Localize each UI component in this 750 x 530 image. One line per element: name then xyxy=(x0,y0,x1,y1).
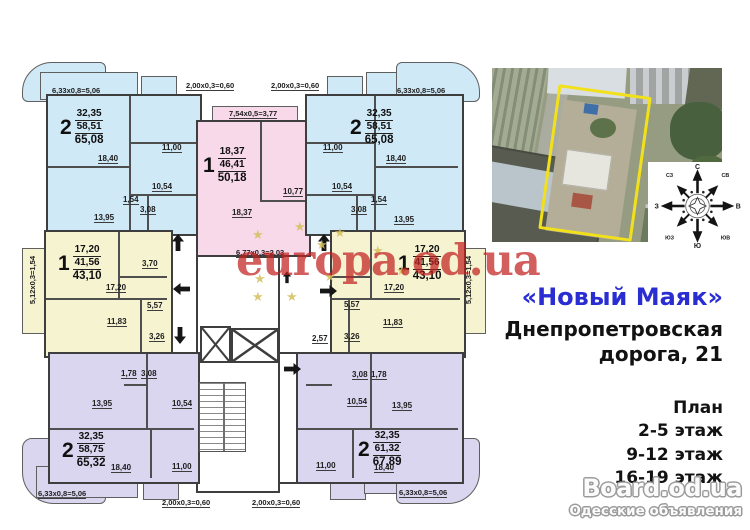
dimension-label: 6,33x0,8=5,06 xyxy=(399,488,447,498)
room-area-label: 13,95 xyxy=(92,400,112,409)
compass-icon: С Ю З В СЗ СВ ЮЗ ЮВ xyxy=(648,162,747,250)
apartment-stats-top-left: 2 32,3558,5165,08 xyxy=(60,108,103,148)
room-area-label: 13,95 xyxy=(392,402,412,411)
area-total: 43,10 xyxy=(73,270,102,284)
room-area-label: 5,57 xyxy=(147,302,163,311)
watermark-europa: europa.od.ua xyxy=(236,240,540,283)
room-area-label: 2,57 xyxy=(312,335,328,344)
room-area-label: 11,00 xyxy=(323,144,343,153)
wall xyxy=(48,166,129,168)
address-line-1: Днепропетровская xyxy=(470,317,723,342)
room-area-label: 11,00 xyxy=(162,144,182,153)
dimension-label: 7,54x0,5=3,77 xyxy=(229,109,277,119)
compass-northwest-label: СЗ xyxy=(666,173,674,179)
area-living: 18,37 xyxy=(218,146,247,159)
area-living: 32,35 xyxy=(75,108,104,121)
wall xyxy=(262,200,305,202)
room-area-label: 10,54 xyxy=(332,183,352,192)
arrow-left-icon xyxy=(173,283,195,295)
compass-southeast-label: ЮВ xyxy=(721,235,731,241)
room-area-label: 18,37 xyxy=(232,209,252,218)
room-area-label: 3,26 xyxy=(149,333,165,342)
board-tagline: Одесские объявления xyxy=(480,503,742,519)
room-area-label: 3,08 xyxy=(352,371,368,380)
compass-west-label: З xyxy=(655,204,660,211)
compass-southwest-label: ЮЗ xyxy=(665,235,675,241)
room-area-label: 13,95 xyxy=(394,216,414,225)
room-area-label: 17,20 xyxy=(106,284,126,293)
arrow-right-icon xyxy=(315,285,337,297)
elevator-shaft xyxy=(231,328,279,363)
room-area-label: 11,00 xyxy=(316,462,336,471)
project-title: «Новый Маяк» xyxy=(470,283,723,311)
compass-east-label: В xyxy=(736,204,741,211)
wall xyxy=(140,300,142,352)
plan-heading: План xyxy=(470,397,723,420)
wall xyxy=(124,384,148,386)
room-area-label: 11,83 xyxy=(383,319,403,328)
area-usable: 61,32 xyxy=(373,443,402,456)
arrow-right-icon xyxy=(279,363,301,375)
elevator-shaft xyxy=(200,326,231,363)
room-area-label: 1,54 xyxy=(123,196,139,205)
dimension-label: 6,33x0,8=5,06 xyxy=(52,86,100,96)
room-area-label: 3,70 xyxy=(142,260,158,269)
room-count: 1 xyxy=(58,253,70,274)
stair-rail xyxy=(223,383,225,451)
apartment-stats-top-middle: 1 18,3746,4150,18 xyxy=(203,146,246,186)
wall xyxy=(150,430,152,478)
wall xyxy=(260,122,262,202)
site-outline xyxy=(538,84,651,242)
dimension-label: 2,00x0,3=0,60 xyxy=(271,81,319,91)
dimension-label: 2,00x0,3=0,60 xyxy=(252,498,300,508)
floor-range-2: 9-12 этаж xyxy=(470,444,723,467)
room-area-label: 18,40 xyxy=(374,464,394,473)
room-area-label: 10,54 xyxy=(172,400,192,409)
room-area-label: 10,54 xyxy=(347,398,367,407)
room-area-label: 18,40 xyxy=(98,155,118,164)
area-usable: 58,75 xyxy=(77,444,106,457)
room-area-label: 11,00 xyxy=(172,463,192,472)
compass-northeast-label: СВ xyxy=(722,173,730,179)
wall xyxy=(131,194,196,196)
room-count: 2 xyxy=(358,439,370,460)
floor-plan: 2 32,3558,5165,08 1 18,3746,4150,18 2 32… xyxy=(0,0,490,530)
room-area-label: 18,40 xyxy=(111,464,131,473)
area-living: 32,35 xyxy=(77,431,106,444)
wall xyxy=(146,354,148,428)
apartment-stats-middle-left: 1 17,2041,5643,10 xyxy=(58,244,101,284)
wall xyxy=(50,428,194,430)
area-living: 32,35 xyxy=(373,430,402,443)
board-logo: Board.od.ua xyxy=(480,474,742,502)
dimension-label: 2,00x0,3=0,60 xyxy=(162,498,210,508)
wall xyxy=(46,298,167,300)
area-total: 65,08 xyxy=(75,134,104,148)
room-area-label: 10,77 xyxy=(283,188,303,197)
area-living: 32,35 xyxy=(365,108,394,121)
room-area-label: 3,08 xyxy=(141,370,157,379)
room-area-label: 1,54 xyxy=(371,196,387,205)
area-usable: 46,41 xyxy=(218,159,247,172)
room-count: 1 xyxy=(203,155,215,176)
compass-rose: С Ю З В СЗ СВ ЮЗ ЮВ xyxy=(648,162,747,250)
wall xyxy=(306,384,332,386)
staircase xyxy=(199,382,246,452)
star-icon: ★ xyxy=(252,290,264,303)
compass-north-label: С xyxy=(695,164,700,171)
room-count: 2 xyxy=(60,117,72,138)
dimension-label-vertical: 5,12x0,3=1,54 xyxy=(28,256,37,304)
area-usable: 41,56 xyxy=(73,257,102,270)
area-total: 65,32 xyxy=(77,457,106,471)
wall xyxy=(307,194,374,196)
room-area-label: 10,54 xyxy=(152,183,172,192)
dimension-label: 6,33x0,8=5,06 xyxy=(38,489,86,499)
compass-south-label: Ю xyxy=(694,243,701,250)
area-total: 50,18 xyxy=(218,172,247,186)
area-total: 65,08 xyxy=(365,134,394,148)
area-usable: 58,51 xyxy=(365,121,394,134)
listing-image: 2 32,3558,5165,08 1 18,3746,4150,18 2 32… xyxy=(0,0,750,530)
room-area-label: 13,95 xyxy=(94,214,114,223)
apartment-stats-bottom-left: 2 32,3558,7565,32 xyxy=(62,431,105,471)
area-living: 17,20 xyxy=(73,244,102,257)
stair-elevator-core xyxy=(196,251,280,493)
room-area-label: 11,83 xyxy=(107,318,127,327)
room-count: 2 xyxy=(350,117,362,138)
apartment-stats-top-right: 2 32,3558,5165,08 xyxy=(350,108,393,148)
dimension-label: 2,00x0,3=0,60 xyxy=(186,81,234,91)
wall xyxy=(352,430,354,478)
arrow-up-icon xyxy=(172,234,184,256)
room-area-label: 3,26 xyxy=(344,333,360,342)
wall xyxy=(376,166,458,168)
wall xyxy=(370,354,372,428)
board-watermark: Board.od.ua Одесские объявления xyxy=(480,474,742,519)
info-panel: «Новый Маяк» Днепропетровская дорога, 21… xyxy=(470,283,723,491)
floor-range-1: 2-5 этаж xyxy=(470,420,723,443)
room-area-label: 1,78 xyxy=(371,371,387,380)
wall xyxy=(118,276,167,278)
tree-cluster xyxy=(670,102,722,160)
arrow-down-icon xyxy=(174,322,186,344)
star-icon: ★ xyxy=(294,220,306,233)
room-area-label: 3,08 xyxy=(140,206,156,215)
address-line-2: дорога, 21 xyxy=(470,342,723,367)
room-area-label: 5,57 xyxy=(344,301,360,310)
wall xyxy=(129,96,131,230)
room-count: 2 xyxy=(62,440,74,461)
area-usable: 58,51 xyxy=(75,121,104,134)
star-icon: ★ xyxy=(286,290,298,303)
dimension-label: 6,33x0,8=5,06 xyxy=(397,86,445,96)
room-area-label: 1,78 xyxy=(121,370,137,379)
room-area-label: 3,08 xyxy=(351,206,367,215)
room-area-label: 18,40 xyxy=(386,155,406,164)
